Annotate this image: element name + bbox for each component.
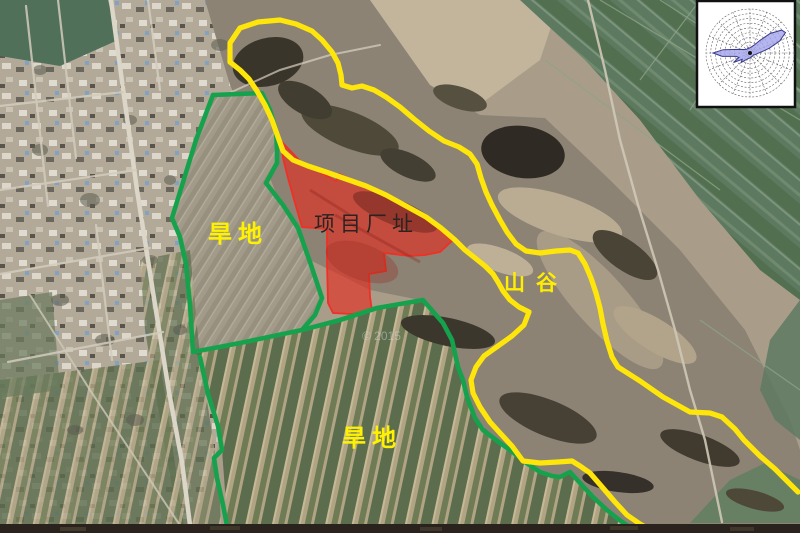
bottom-dark-band xyxy=(0,524,800,533)
terrain-background xyxy=(0,0,800,533)
valley-label: 山谷 xyxy=(504,272,568,295)
dry-land-label-lower: 旱地 xyxy=(342,425,402,452)
satellite-map: © 2015 项目厂址 旱地 旱地 山谷 xyxy=(0,0,800,533)
map-canvas: © 2015 项目厂址 旱地 旱地 山谷 xyxy=(0,0,800,533)
copyright-watermark: © 2015 xyxy=(362,329,401,343)
field-left-edge xyxy=(0,292,60,398)
wind-rose-inset xyxy=(697,1,795,107)
wind-rose-center xyxy=(748,51,752,55)
project-site-label: 项目厂址 xyxy=(314,212,418,236)
dry-land-label-upper: 旱地 xyxy=(208,221,268,248)
